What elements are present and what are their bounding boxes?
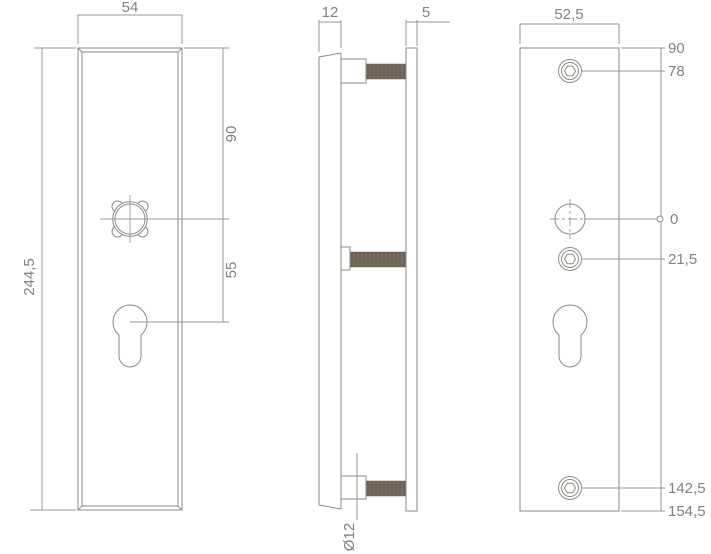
dim-cylinder-offset-label: 55 — [223, 262, 240, 279]
level-screw-bottom: 142,5 — [582, 480, 706, 497]
front-view-dimensions: 54 244,5 90 55 — [21, 0, 240, 510]
plate-bottom-edge — [319, 505, 341, 509]
dim-front-height: 244,5 — [21, 48, 76, 510]
bolt-head — [341, 59, 366, 83]
front-view — [78, 48, 229, 510]
back-plate-outline — [520, 48, 619, 511]
back-plate-profile — [406, 48, 417, 511]
dim-front-width-label: 54 — [122, 0, 139, 16]
bolt-head — [341, 247, 350, 270]
front-plate-bevel — [82, 52, 178, 506]
dim-back-plate-thickness-label: 5 — [422, 4, 430, 21]
bolt-thread — [350, 252, 406, 267]
bolt-top — [341, 59, 406, 83]
cylinder-hole-front — [113, 305, 229, 367]
level-label: 154,5 — [668, 503, 706, 520]
screw-bottom — [559, 477, 582, 500]
technical-drawing: 54 244,5 90 55 — [0, 0, 711, 554]
bevel-corner — [178, 48, 182, 52]
dim-plate-thickness-label: 12 — [322, 4, 339, 21]
dim-bolt-diameter: Ø12 — [341, 453, 358, 551]
euro-profile-cutout — [553, 305, 587, 367]
dim-front-height-label: 244,5 — [21, 258, 38, 296]
level-label: 78 — [668, 63, 685, 80]
dim-front-offsets: 90 55 — [184, 48, 240, 322]
dim-plate-thickness: 12 — [319, 4, 341, 52]
level-screw-top: 78 — [582, 63, 685, 80]
level-spindle-zero: 0 — [585, 211, 678, 228]
back-view-dimensions: 52,5 90 78 0 21,5 142,5 154,5 — [520, 6, 706, 520]
plate-top-edge — [319, 53, 341, 57]
bolt-bottom — [341, 476, 406, 499]
bevel-corner — [178, 506, 182, 510]
spindle-hole-back — [550, 199, 590, 239]
bolt-middle — [341, 247, 406, 270]
bevel-corner — [78, 48, 82, 52]
dim-back-width: 52,5 — [520, 6, 619, 44]
back-view — [520, 48, 619, 511]
screw-top — [559, 60, 582, 83]
bolt-thread — [366, 64, 406, 79]
level-label: 21,5 — [668, 251, 697, 268]
front-plate-profile — [319, 53, 341, 509]
screw-middle — [559, 248, 582, 271]
dim-spindle-offset-label: 90 — [223, 126, 240, 143]
bolt-thread — [366, 481, 406, 496]
level-label: 142,5 — [668, 480, 706, 497]
level-label: 0 — [670, 211, 678, 228]
door-plate-drawing: 54 244,5 90 55 — [0, 0, 711, 554]
dim-bolt-diameter-label: Ø12 — [341, 523, 358, 551]
side-view: 12 5 Ø12 — [319, 4, 450, 551]
dim-back-plate-thickness: 5 — [406, 4, 450, 46]
level-label: 90 — [668, 40, 685, 57]
level-top-edge: 90 — [621, 40, 685, 57]
bevel-corner — [78, 506, 82, 510]
euro-profile-cutout — [113, 305, 147, 367]
level-screw-middle: 21,5 — [582, 251, 698, 268]
spindle-hole-front — [100, 195, 229, 243]
front-plate-outline — [78, 48, 182, 510]
bolt-head — [341, 476, 366, 499]
zero-marker-icon — [657, 216, 663, 222]
level-bottom-edge: 154,5 — [621, 503, 706, 520]
dim-back-width-label: 52,5 — [554, 6, 583, 23]
dim-front-width: 54 — [78, 0, 182, 44]
